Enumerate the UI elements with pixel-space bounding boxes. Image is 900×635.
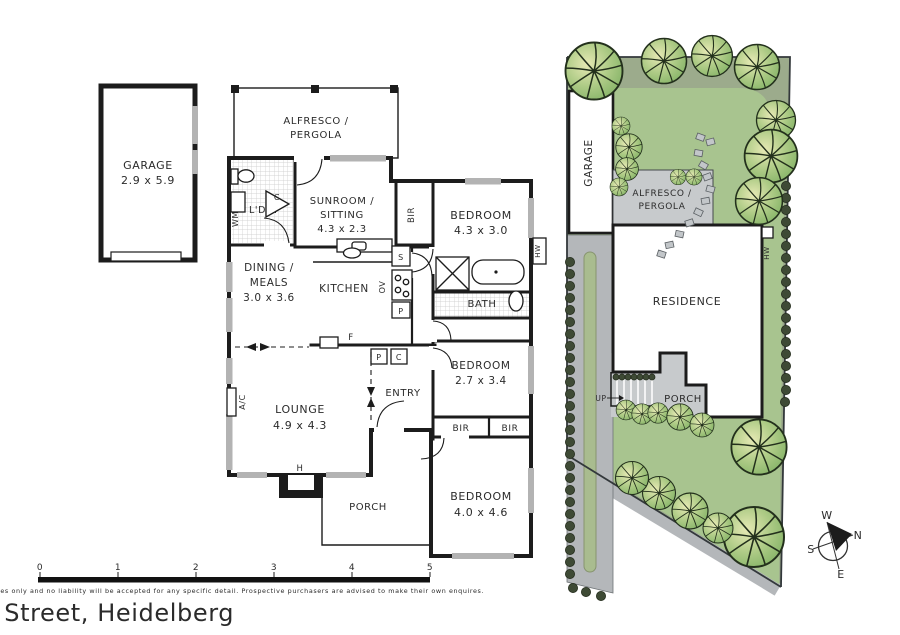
window <box>192 106 198 144</box>
toilet-tank <box>231 169 238 184</box>
scale-tick-0: 0 <box>37 563 43 573</box>
scale-tick-5: 5 <box>427 563 433 573</box>
floorplan-page: GARAGE ALFRESCO / PERGOLA UP RESIDENCE P… <box>0 0 900 635</box>
fireplace-inner <box>288 475 314 490</box>
p-label: P <box>376 353 381 362</box>
garage-dims: 2.9 x 5.9 <box>121 174 175 187</box>
driveway-garden-strip <box>584 252 596 572</box>
tree-icon <box>566 43 623 100</box>
tree-icon <box>672 493 708 529</box>
window <box>465 178 501 185</box>
scale-ticks <box>40 572 430 577</box>
garage-label: GARAGE <box>123 159 173 172</box>
site-residence-label: RESIDENCE <box>653 295 722 308</box>
site-plan: GARAGE ALFRESCO / PERGOLA UP RESIDENCE P… <box>565 36 797 601</box>
entry-label: ENTRY <box>385 388 421 399</box>
sunroom-label-1: SUNROOM / <box>310 196 374 207</box>
c-label: C <box>396 353 402 362</box>
tree-icon <box>736 178 783 225</box>
window <box>452 553 514 559</box>
tree-icon <box>692 36 733 77</box>
bedroom1-label: BEDROOM <box>450 209 512 222</box>
address-title: 51 Mortimer Street, Heidelberg <box>0 599 234 627</box>
arrow-right <box>260 343 270 351</box>
scale-tick-3: 3 <box>271 563 277 573</box>
window <box>326 472 366 478</box>
bir-label: BIR <box>502 424 519 434</box>
scale-bar-rule <box>38 577 430 583</box>
compass-e: E <box>837 568 845 581</box>
site-garage-label: GARAGE <box>583 139 595 187</box>
h-label: H <box>297 464 304 474</box>
tree-icon <box>670 169 686 185</box>
bir-label: BIR <box>407 207 417 223</box>
bath-drain <box>494 270 497 273</box>
bir-label: BIR <box>453 424 470 434</box>
bedroom3-dims: 4.0 x 4.6 <box>454 506 508 519</box>
ac-unit <box>227 388 236 416</box>
site-porch-label: PORCH <box>664 394 702 405</box>
window <box>226 414 233 470</box>
disclaimer-text: Scale bar in metres. Dimentions shown ar… <box>0 587 484 595</box>
scale-tick-1: 1 <box>115 563 121 573</box>
tree-icon <box>703 513 733 543</box>
sunroom-dims: 4.3 x 2.3 <box>317 224 366 235</box>
porch-label: PORCH <box>349 502 387 513</box>
s-label: S <box>398 253 404 262</box>
lounge-dims: 4.9 x 4.3 <box>273 419 327 432</box>
window <box>226 358 233 384</box>
alfresco-label-1: ALFRESCO / <box>283 116 348 127</box>
bath-label: BATH <box>468 299 497 310</box>
window <box>528 346 534 394</box>
arrow-left <box>246 343 256 351</box>
bedroom1-dims: 4.3 x 3.0 <box>454 224 508 237</box>
site-up-label: UP <box>595 394 606 403</box>
scale-bar: 0 1 2 3 4 5 <box>37 563 433 583</box>
ac-label: A/C <box>238 394 247 410</box>
tree-icon <box>616 134 642 160</box>
tree-icon <box>686 169 702 185</box>
garage-door <box>111 252 181 261</box>
lounge-label: LOUNGE <box>275 403 325 416</box>
kitchen-label: KITCHEN <box>319 283 369 295</box>
hw-label: HW <box>534 244 542 257</box>
window <box>192 150 198 174</box>
tree-icon <box>731 419 786 474</box>
tree-icon <box>667 404 693 430</box>
tree-icon <box>745 130 798 183</box>
dining-label-1: DINING / <box>244 262 294 274</box>
sunroom-label-2: SITTING <box>320 210 364 221</box>
compass-rose: W N S E <box>807 509 862 581</box>
bedroom2-label: BEDROOM <box>451 360 510 372</box>
dining-label-2: MEALS <box>250 277 288 289</box>
site-alfresco-label-1: ALFRESCO / <box>632 189 692 199</box>
window <box>528 468 534 513</box>
toilet-icon <box>238 170 254 182</box>
tree-icon <box>735 45 780 90</box>
post <box>231 85 239 93</box>
site-hw-label: HW <box>763 246 771 259</box>
room-garage <box>101 86 195 260</box>
scale-tick-4: 4 <box>349 563 355 573</box>
tree-icon <box>610 178 628 196</box>
alfresco-label-2: PERGOLA <box>290 130 342 141</box>
ov-label: OV <box>378 281 387 294</box>
basin-icon <box>509 291 523 311</box>
window <box>528 198 534 238</box>
plan-canvas: GARAGE ALFRESCO / PERGOLA UP RESIDENCE P… <box>0 0 900 635</box>
p-label: P <box>398 307 403 316</box>
bathtub-icon <box>472 260 524 284</box>
scale-tick-2: 2 <box>193 563 199 573</box>
door-arc <box>377 401 404 427</box>
sink-icon <box>344 248 361 258</box>
window <box>237 472 267 478</box>
window <box>330 155 386 162</box>
tree-icon <box>616 462 649 495</box>
footer: 0 1 2 3 4 5 Scale bar in metres. Dimenti… <box>0 563 484 627</box>
dining-dims: 3.0 x 3.6 <box>243 292 295 304</box>
post <box>390 85 398 93</box>
post <box>311 85 319 93</box>
floor-plan: GARAGE 2.9 x 5.9 ALFRESCO / PERGOLA <box>101 85 546 559</box>
wm-label: WM <box>231 211 240 227</box>
compass-w: W <box>821 509 832 522</box>
washing-machine <box>231 192 245 212</box>
f-label: F <box>348 333 354 343</box>
tree-icon <box>642 39 687 84</box>
window <box>226 298 233 332</box>
bedroom3-label: BEDROOM <box>450 490 512 503</box>
bedroom2-dims: 2.7 x 3.4 <box>455 375 507 387</box>
tree-icon <box>648 403 668 423</box>
site-hw-unit <box>762 227 773 238</box>
tree-icon <box>724 507 784 567</box>
tree-icon <box>616 158 639 181</box>
arrow-down <box>367 387 375 396</box>
tree-icon <box>690 413 714 437</box>
fridge-space <box>320 337 338 348</box>
tree-icon <box>612 117 630 135</box>
arrow-up <box>367 398 375 407</box>
cupboard-label: C <box>274 193 280 202</box>
window <box>226 262 233 292</box>
site-alfresco-label-2: PERGOLA <box>638 202 685 212</box>
compass-n: N <box>854 529 863 542</box>
compass-s: S <box>807 543 815 556</box>
door-arc <box>297 159 322 185</box>
